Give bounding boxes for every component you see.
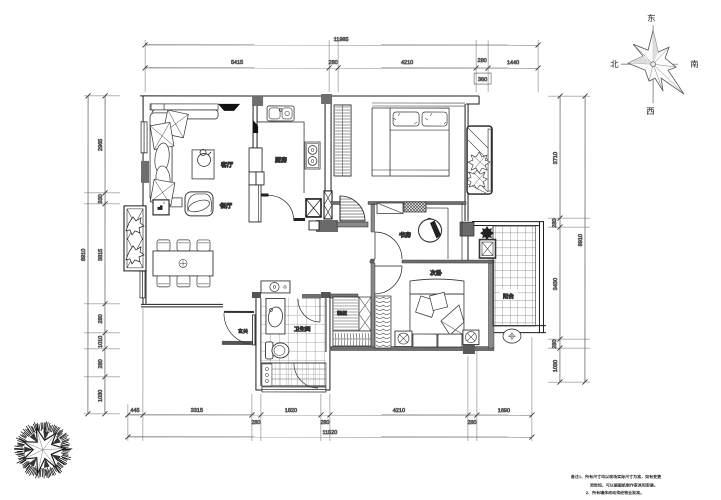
svg-text:北: 北: [610, 59, 619, 69]
svg-text:1030: 1030: [98, 390, 104, 402]
svg-text:西: 西: [646, 106, 655, 116]
svg-text:鞋柜: 鞋柜: [337, 310, 347, 317]
svg-text:280: 280: [320, 420, 329, 426]
svg-text:南: 南: [690, 59, 699, 69]
svg-text:次卧: 次卧: [430, 269, 442, 277]
svg-text:4210: 4210: [401, 60, 413, 66]
svg-text:东: 东: [647, 13, 656, 23]
svg-text:360: 360: [478, 77, 487, 83]
svg-text:3430: 3430: [553, 278, 559, 290]
svg-text:280: 280: [329, 60, 338, 66]
svg-text:餐厅: 餐厅: [219, 202, 232, 210]
svg-text:厨房: 厨房: [275, 156, 287, 164]
svg-text:4210: 4210: [393, 408, 405, 414]
svg-text:1440: 1440: [507, 60, 519, 66]
svg-text:280: 280: [98, 314, 104, 323]
svg-text:书房: 书房: [399, 231, 411, 239]
svg-text:280: 280: [251, 420, 260, 426]
svg-text:玄关: 玄关: [238, 328, 248, 335]
svg-text:2、所有墙体改动须经物业批准。: 2、所有墙体改动须经物业批准。: [586, 489, 644, 495]
svg-text:3815: 3815: [98, 249, 104, 261]
svg-text:1820: 1820: [285, 408, 297, 414]
svg-text:280: 280: [552, 219, 558, 228]
svg-text:2965: 2965: [98, 139, 104, 151]
svg-text:阳台: 阳台: [503, 292, 515, 300]
svg-text:8910: 8910: [81, 249, 87, 261]
svg-text:1690: 1690: [498, 408, 510, 414]
svg-text:1010: 1010: [98, 336, 104, 348]
svg-text:280: 280: [467, 420, 476, 426]
svg-text:280: 280: [98, 359, 104, 368]
svg-text:备注1、所有尺寸均以现场实际尺寸为准，如有变更: 备注1、所有尺寸均以现场实际尺寸为准，如有变更: [570, 473, 662, 479]
svg-text:卫生间: 卫生间: [294, 325, 311, 333]
svg-text:330: 330: [98, 194, 104, 203]
svg-text:445: 445: [130, 408, 139, 414]
svg-text:280: 280: [552, 340, 558, 349]
svg-text:11985: 11985: [334, 37, 349, 43]
svg-text:客厅: 客厅: [220, 161, 233, 169]
svg-text:8910: 8910: [578, 234, 584, 246]
svg-text:280: 280: [478, 58, 487, 64]
svg-text:1030: 1030: [553, 360, 559, 372]
svg-text:3315: 3315: [191, 408, 203, 414]
svg-text:须告知，可以据图纸制作家具和安装。: 须告知，可以据图纸制作家具和安装。: [590, 482, 658, 488]
svg-text:5415: 5415: [231, 60, 243, 66]
svg-text:3710: 3710: [553, 152, 559, 164]
